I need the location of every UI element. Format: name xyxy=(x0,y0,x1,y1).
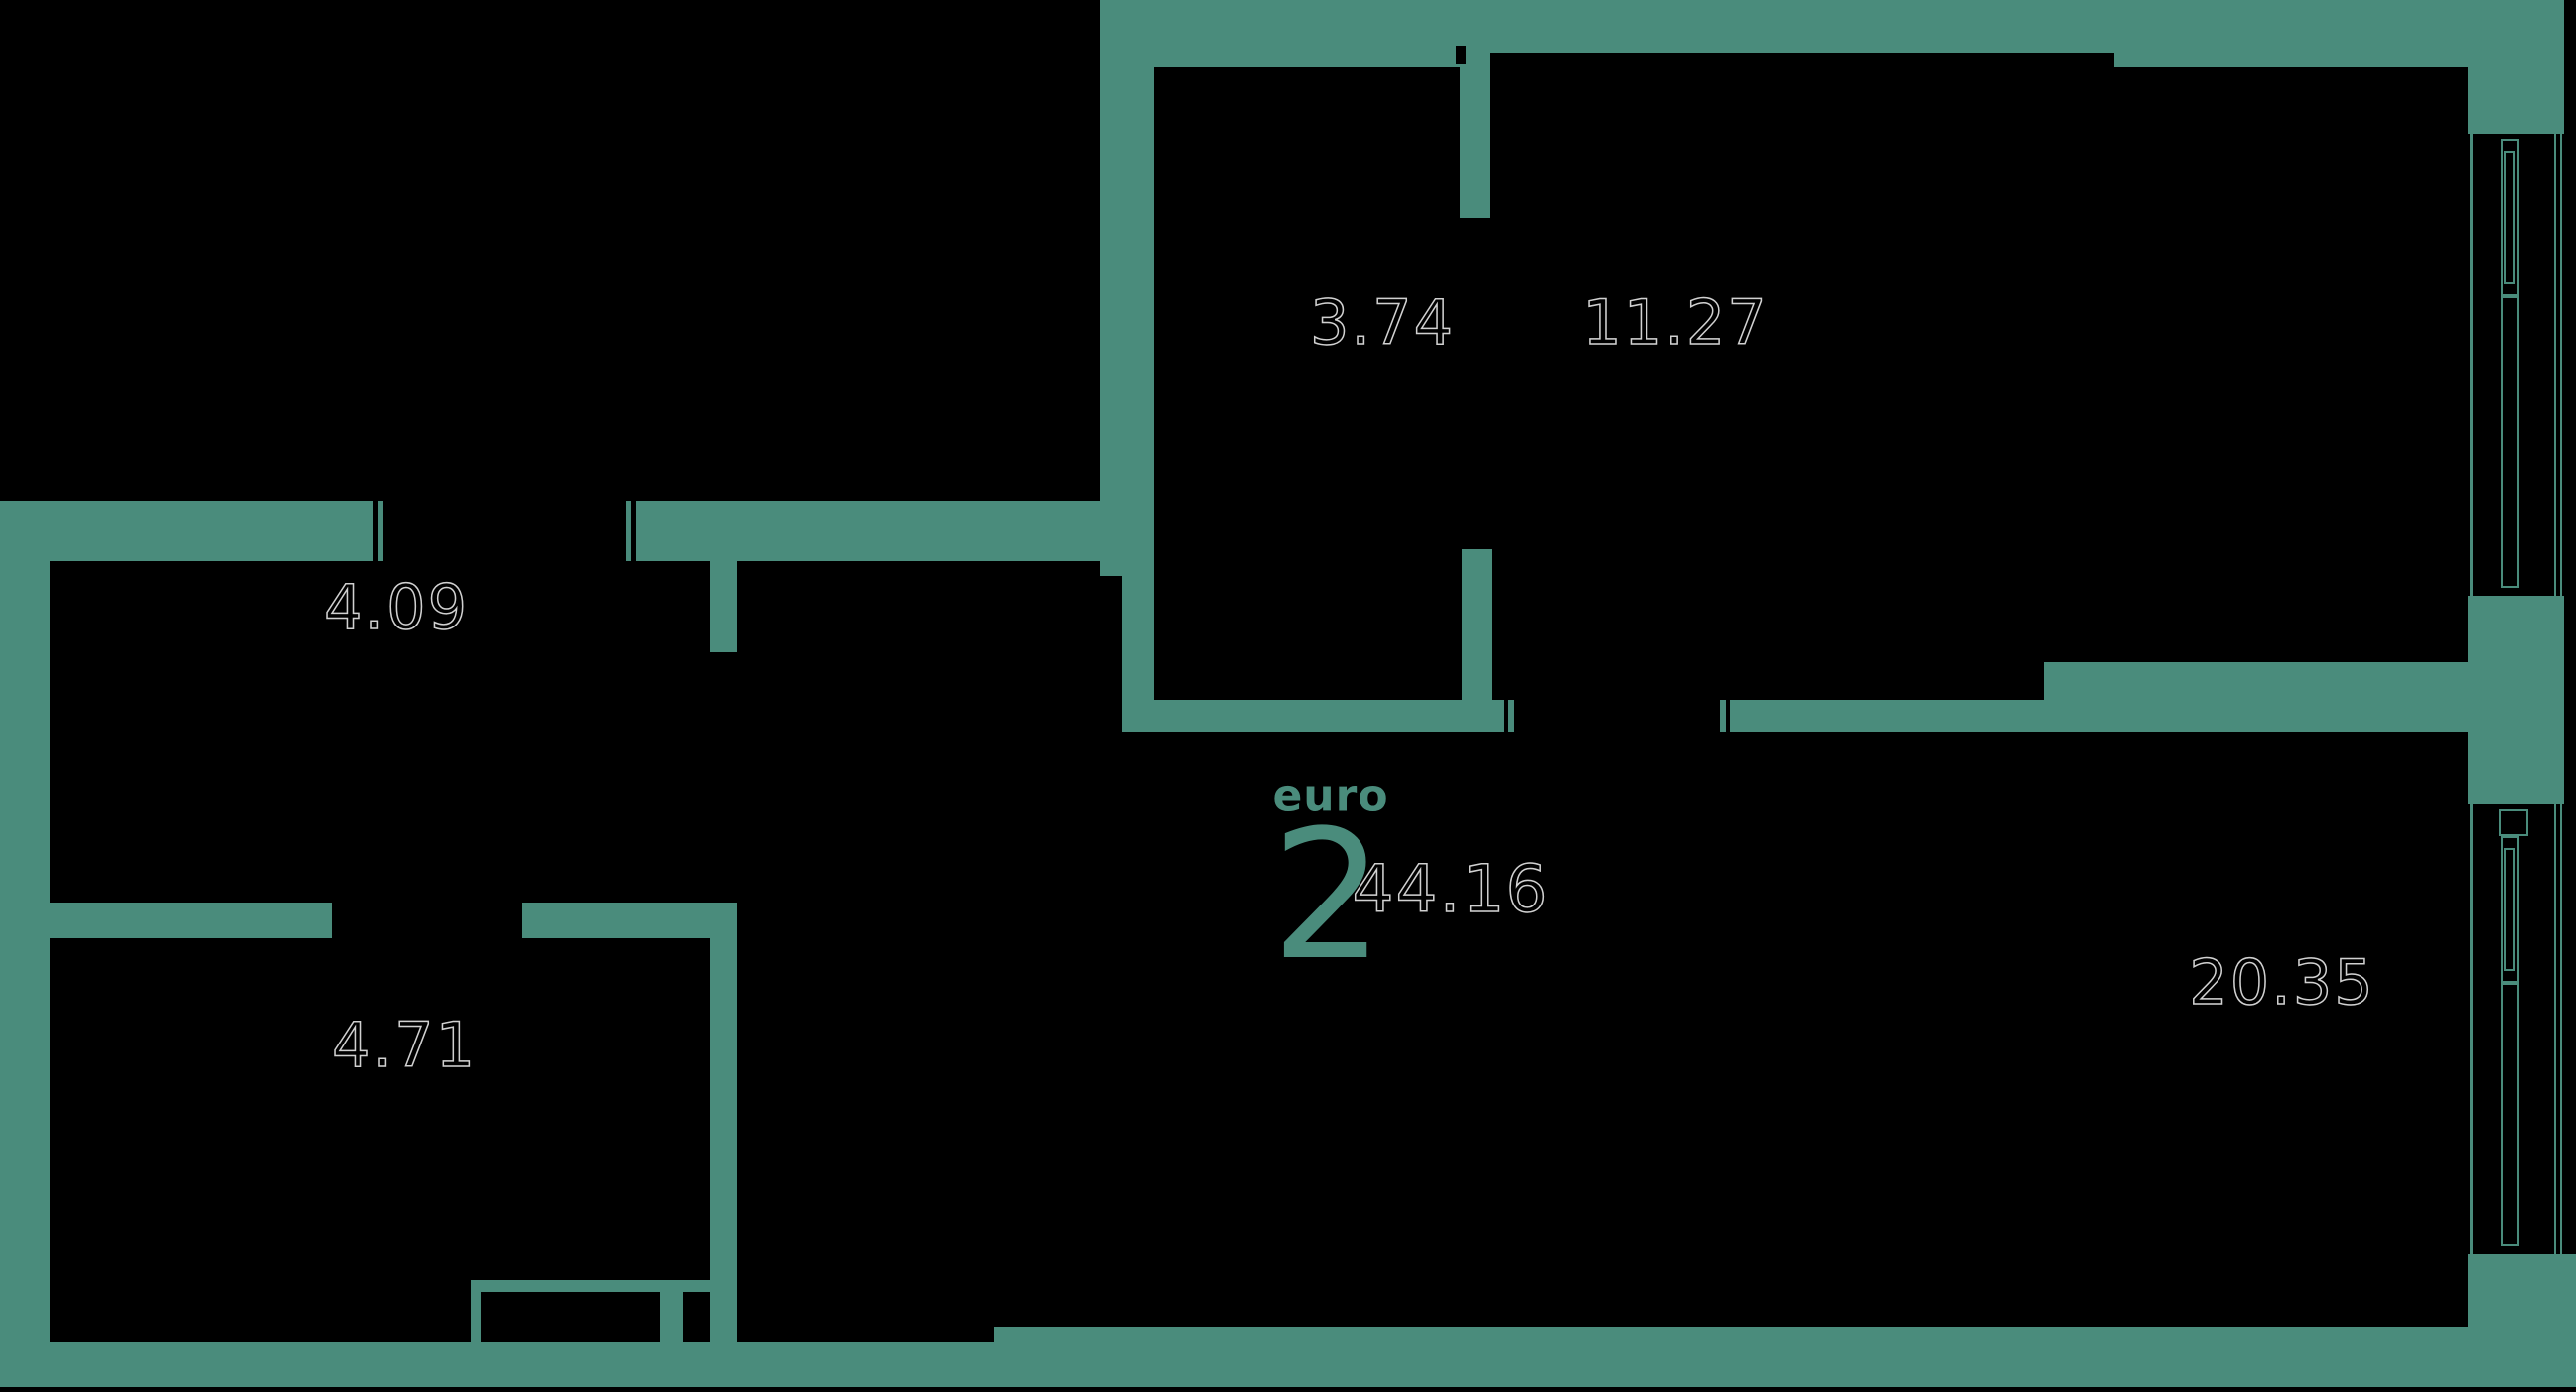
wall-kitchen-upper xyxy=(1100,0,1154,576)
door-jamb-entrance-right xyxy=(626,501,631,561)
wall-bottom-right xyxy=(994,1327,2576,1387)
window2-glazing-line-a xyxy=(2554,804,2556,1254)
wall-entrance-right xyxy=(636,501,1100,561)
wall-bottom-left xyxy=(0,1342,994,1387)
room-area-label-4-09: 4.09 xyxy=(324,575,469,640)
shaft-divider-rail xyxy=(660,1292,683,1342)
wall-divider-409-471-r xyxy=(522,903,737,938)
window2-wall-face-line xyxy=(2470,804,2473,1254)
wall-right-mid xyxy=(2468,596,2564,804)
wall-top-mid xyxy=(1460,0,2114,53)
wall-top-left xyxy=(1100,0,1460,67)
window2-sash-lower xyxy=(2501,983,2519,1246)
shaft-top-rail xyxy=(471,1280,712,1292)
window1-wall-face-line xyxy=(2470,134,2473,596)
wall-notch-divider-top xyxy=(1456,46,1466,64)
door-jamb-central-left xyxy=(1508,700,1514,732)
window2-glazing-line-b xyxy=(2560,804,2562,1254)
wall-left-outer xyxy=(0,501,50,1387)
window1-sash-lower xyxy=(2501,296,2519,588)
window1-glazing-line-b xyxy=(2560,134,2562,596)
wall-kitchen-lower xyxy=(1122,576,1154,732)
wall-top-right xyxy=(2114,0,2468,67)
door-jamb-entrance-left xyxy=(378,501,383,561)
wall-central-left xyxy=(1154,700,1504,732)
wall-room1127-left xyxy=(1462,549,1492,700)
wall-divider-374-1127 xyxy=(1460,53,1490,218)
room-area-label-4-71: 4.71 xyxy=(332,1013,477,1078)
shaft-left-rail xyxy=(471,1280,481,1342)
window2-sash-cap xyxy=(2499,809,2528,836)
room-area-label-11-27: 11.27 xyxy=(1582,290,1769,355)
wall-bath-stub xyxy=(710,561,737,652)
window1-sash-upper-inner xyxy=(2504,151,2515,284)
wall-bath-main xyxy=(710,903,737,1342)
door-jamb-central-right xyxy=(1720,700,1726,732)
window2-sash-upper-inner xyxy=(2504,848,2515,971)
wall-central-thick xyxy=(2044,662,2470,732)
wall-corner-top-right xyxy=(2468,0,2564,134)
apartment-total-area: 44.16 xyxy=(1353,855,1550,924)
window1-glazing-line-a xyxy=(2554,134,2556,596)
floor-plan: 4.09 4.71 3.74 11.27 20.35 euro 2 44.16 xyxy=(0,0,2576,1392)
wall-central-right xyxy=(1730,700,2044,732)
wall-divider-409-471-l xyxy=(50,903,332,938)
room-area-label-20-35: 20.35 xyxy=(2189,950,2375,1016)
room-area-label-3-74: 3.74 xyxy=(1310,290,1455,355)
wall-entrance-left xyxy=(0,501,373,561)
